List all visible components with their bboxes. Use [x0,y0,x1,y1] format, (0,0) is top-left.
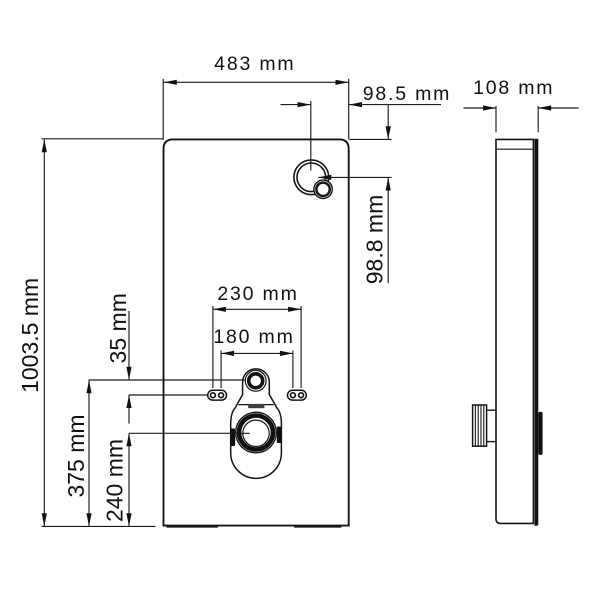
svg-text:483 mm: 483 mm [214,53,295,75]
svg-text:35 mm: 35 mm [105,293,131,363]
svg-text:230 mm: 230 mm [217,283,298,305]
svg-text:1003.5 mm: 1003.5 mm [17,278,43,393]
svg-text:98.5 mm: 98.5 mm [363,83,451,105]
svg-text:240 mm: 240 mm [102,439,128,522]
svg-text:180 mm: 180 mm [213,326,294,348]
svg-text:375 mm: 375 mm [63,414,89,497]
svg-text:108 mm: 108 mm [473,77,554,99]
svg-text:98.8 mm: 98.8 mm [362,195,388,284]
